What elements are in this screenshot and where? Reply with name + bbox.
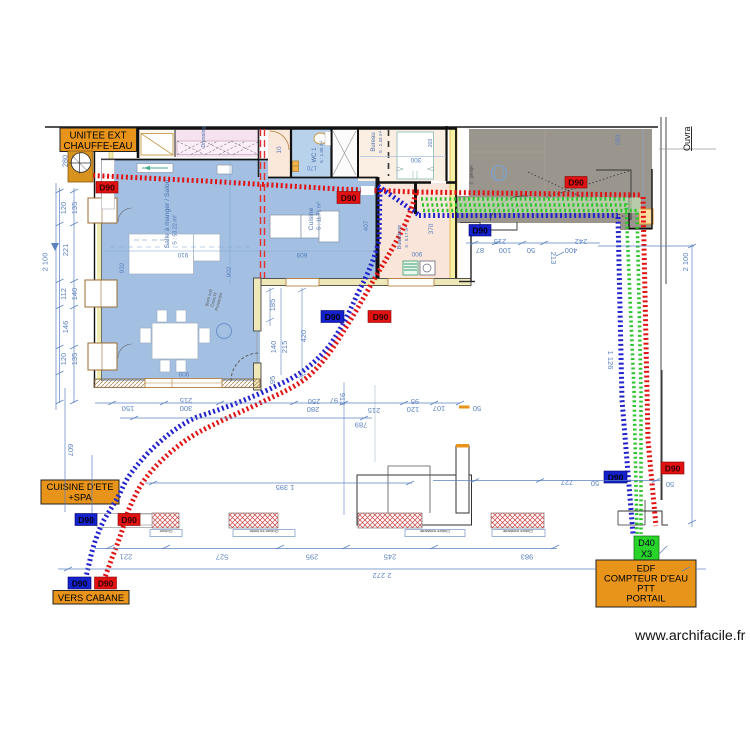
svg-text:185: 185 <box>268 299 277 312</box>
svg-text:280: 280 <box>307 405 320 414</box>
svg-text:CHAUFFE-EAU: CHAUFFE-EAU <box>64 141 133 152</box>
svg-text:50: 50 <box>527 246 535 255</box>
svg-text:527: 527 <box>216 553 229 562</box>
svg-text:Cloture en limite: Cloture en limite <box>249 529 279 534</box>
svg-text:Bureau: Bureau <box>371 132 377 151</box>
svg-text:215: 215 <box>494 237 507 246</box>
svg-text:242: 242 <box>575 237 588 246</box>
svg-text:913: 913 <box>338 393 347 406</box>
svg-text:D90: D90 <box>608 473 624 483</box>
svg-text:D90: D90 <box>72 579 88 589</box>
svg-text:D90: D90 <box>373 312 389 322</box>
svg-text:120: 120 <box>59 353 68 366</box>
svg-text:WC 1: WC 1 <box>312 147 318 163</box>
svg-text:D90: D90 <box>121 515 137 525</box>
svg-text:221: 221 <box>61 244 70 257</box>
svg-text:S : 2.33 m²: S : 2.33 m² <box>378 130 383 153</box>
svg-text:300: 300 <box>180 404 193 413</box>
svg-text:983: 983 <box>521 553 534 562</box>
svg-text:10: 10 <box>276 146 283 154</box>
svg-text:Cloture existante: Cloture existante <box>419 529 450 534</box>
svg-text:789: 789 <box>355 421 368 430</box>
svg-text:D90: D90 <box>99 183 115 193</box>
svg-text:215: 215 <box>368 406 381 415</box>
svg-text:D40: D40 <box>638 538 655 548</box>
svg-text:X3: X3 <box>641 549 652 559</box>
svg-text:CUISINE D'ETE: CUISINE D'ETE <box>47 482 114 492</box>
svg-text:407: 407 <box>363 220 370 231</box>
svg-text:VERS CABANE: VERS CABANE <box>58 593 124 603</box>
svg-text:Cloture existante: Cloture existante <box>502 529 533 534</box>
svg-text:213: 213 <box>549 252 558 265</box>
svg-text:400: 400 <box>565 246 578 255</box>
svg-text:150: 150 <box>122 404 135 413</box>
svg-text:Salle à manger / Salon: Salle à manger / Salon <box>164 179 171 248</box>
svg-text:140: 140 <box>269 341 278 354</box>
svg-text:2 272: 2 272 <box>373 571 392 580</box>
svg-text:D90: D90 <box>325 312 341 322</box>
svg-text:909: 909 <box>178 370 189 377</box>
svg-text:www.archifacile.fr: www.archifacile.fr <box>634 628 746 644</box>
svg-text:S : 53.22 m²: S : 53.22 m² <box>173 215 179 245</box>
svg-text:900: 900 <box>411 250 422 257</box>
svg-text:932: 932 <box>119 262 126 273</box>
svg-text:727: 727 <box>561 478 574 487</box>
svg-text:D90: D90 <box>98 579 114 589</box>
svg-text:UNITEE EXT: UNITEE EXT <box>69 131 126 142</box>
svg-text:D90: D90 <box>568 178 584 188</box>
svg-text:300: 300 <box>410 156 421 163</box>
svg-text:250: 250 <box>308 397 321 406</box>
svg-text:PORTAIL: PORTAIL <box>626 593 665 604</box>
svg-text:D90: D90 <box>341 193 357 203</box>
svg-text:100: 100 <box>499 246 512 255</box>
svg-text:902: 902 <box>226 266 233 277</box>
svg-text:50: 50 <box>473 404 481 413</box>
svg-text:120: 120 <box>407 405 420 414</box>
svg-text:50: 50 <box>666 480 674 489</box>
svg-text:D90: D90 <box>78 515 94 525</box>
svg-text:280: 280 <box>61 155 70 168</box>
svg-text:135: 135 <box>70 353 79 366</box>
svg-text:Dressing: Dressing <box>201 126 207 147</box>
svg-text:Ouvra: Ouvra <box>682 126 692 151</box>
svg-text:D90: D90 <box>472 226 488 236</box>
svg-text:2 100: 2 100 <box>41 253 50 272</box>
svg-text:245: 245 <box>384 553 397 562</box>
svg-text:S : 1.06 m²: S : 1.06 m² <box>319 140 324 163</box>
svg-text:95: 95 <box>268 376 277 384</box>
svg-text:97: 97 <box>330 396 338 405</box>
svg-text:Buanderie: Buanderie <box>397 225 403 250</box>
svg-text:D90: D90 <box>665 464 681 474</box>
svg-text:135: 135 <box>70 202 79 215</box>
svg-text:609: 609 <box>296 251 307 258</box>
svg-text:50: 50 <box>591 479 599 488</box>
svg-text:215: 215 <box>280 341 289 354</box>
svg-text:140: 140 <box>70 288 79 301</box>
svg-text:370: 370 <box>428 223 435 234</box>
svg-text:1 395: 1 395 <box>276 483 295 492</box>
svg-text:120: 120 <box>59 202 68 215</box>
svg-text:203: 203 <box>428 139 434 148</box>
svg-text:221: 221 <box>120 553 133 562</box>
svg-text:107: 107 <box>433 404 446 413</box>
svg-text:87: 87 <box>476 246 484 255</box>
svg-text:170: 170 <box>306 164 317 170</box>
svg-text:910: 910 <box>177 251 188 258</box>
svg-text:2 100: 2 100 <box>681 253 690 272</box>
svg-text:146: 146 <box>61 321 70 334</box>
svg-text:112: 112 <box>59 288 68 300</box>
svg-text:607: 607 <box>66 444 75 457</box>
svg-text:283: 283 <box>615 134 622 145</box>
svg-text:+SPA: +SPA <box>68 493 92 503</box>
svg-text:1 126: 1 126 <box>606 351 615 370</box>
svg-text:S : 5.17 m²: S : 5.17 m² <box>404 226 409 248</box>
svg-text:295: 295 <box>306 553 319 562</box>
svg-text:Cloture: Cloture <box>159 529 173 534</box>
svg-text:Cuisine: Cuisine <box>308 207 315 230</box>
svg-text:S : 11.71 m²: S : 11.71 m² <box>317 202 323 230</box>
svg-text:215: 215 <box>180 396 193 405</box>
svg-text:S : garage: S : garage <box>469 165 474 185</box>
svg-text:95: 95 <box>411 397 419 406</box>
svg-text:420: 420 <box>299 330 308 343</box>
